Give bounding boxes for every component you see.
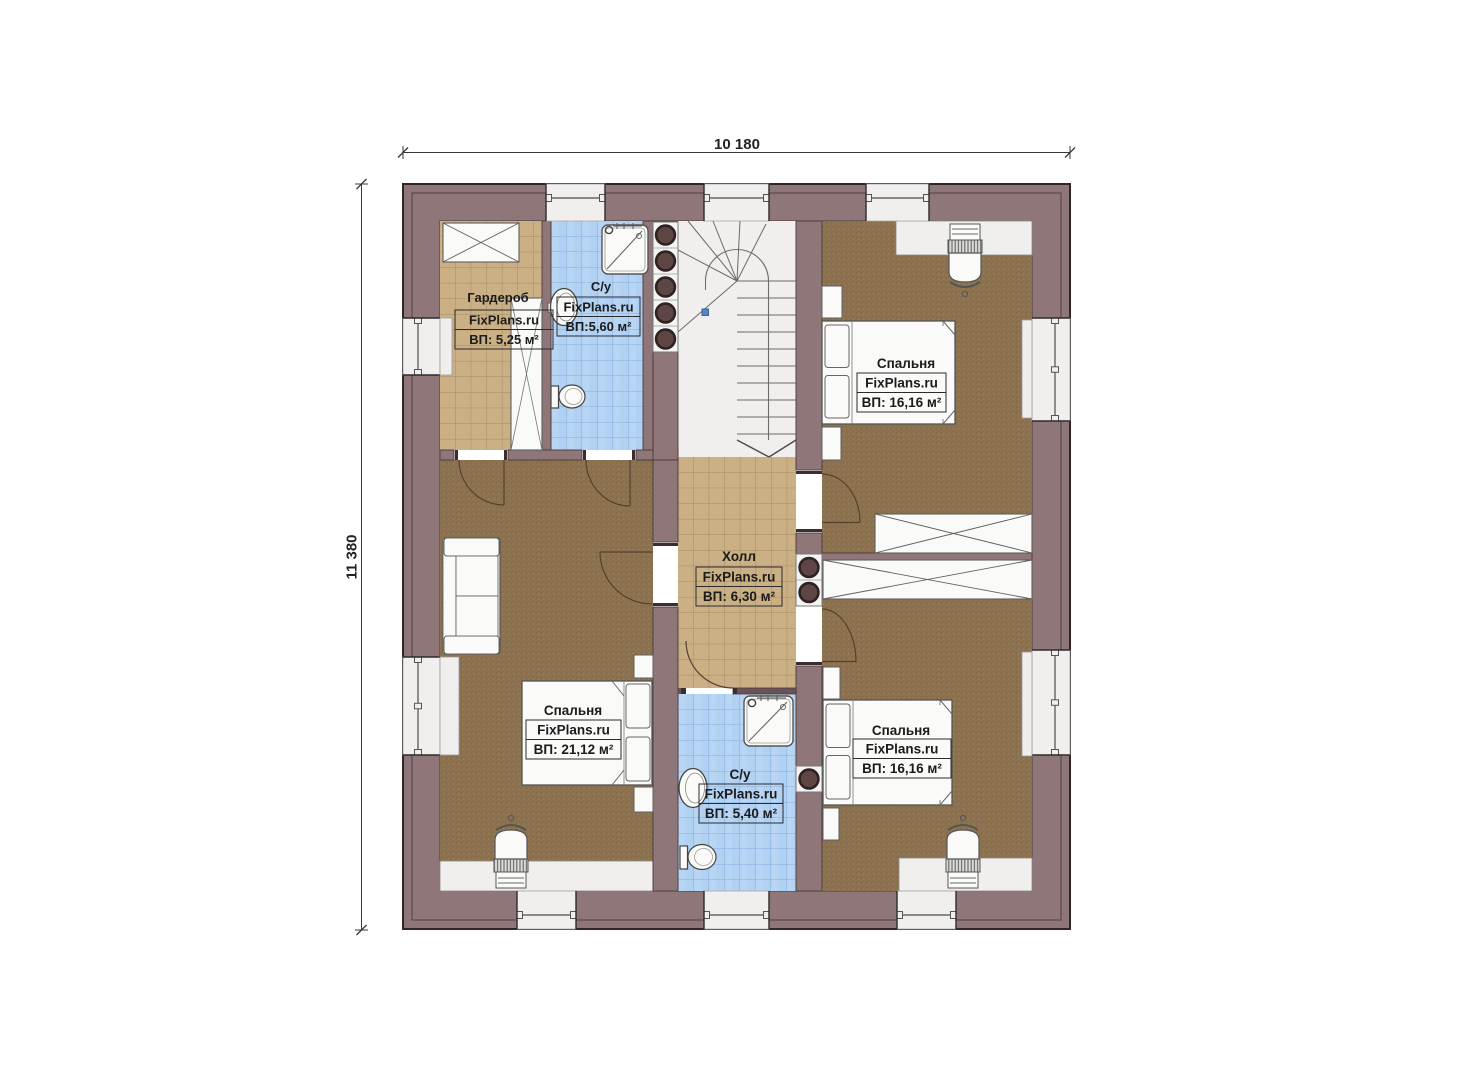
svg-text:ВП: 5,40 м²: ВП: 5,40 м² [705,806,778,821]
svg-text:Спальня: Спальня [544,703,602,718]
svg-text:Гардероб: Гардероб [467,290,528,305]
svg-text:FixPlans.ru: FixPlans.ru [563,300,633,315]
svg-text:FixPlans.ru: FixPlans.ru [865,376,938,391]
svg-text:FixPlans.ru: FixPlans.ru [866,742,939,757]
svg-text:ВП: 16,16 м²: ВП: 16,16 м² [862,761,942,776]
svg-text:11 380: 11 380 [344,534,361,579]
svg-text:Спальня: Спальня [877,356,935,371]
svg-text:ВП: 6,30 м²: ВП: 6,30 м² [703,589,776,604]
svg-text:ВП:5,60 м²: ВП:5,60 м² [566,319,633,334]
svg-text:ВП: 21,12 м²: ВП: 21,12 м² [534,742,614,757]
svg-text:Холл: Холл [722,549,756,564]
svg-text:ВП: 5,25 м²: ВП: 5,25 м² [469,332,539,347]
svg-text:FixPlans.ru: FixPlans.ru [537,723,610,738]
svg-text:FixPlans.ru: FixPlans.ru [705,787,778,802]
svg-text:С/у: С/у [729,767,751,782]
svg-text:FixPlans.ru: FixPlans.ru [469,313,539,328]
svg-text:10 180: 10 180 [714,136,760,153]
svg-text:FixPlans.ru: FixPlans.ru [703,570,776,585]
svg-text:ВП: 16,16 м²: ВП: 16,16 м² [862,395,942,410]
svg-text:Спальня: Спальня [872,723,930,738]
svg-text:С/у: С/у [591,279,612,294]
